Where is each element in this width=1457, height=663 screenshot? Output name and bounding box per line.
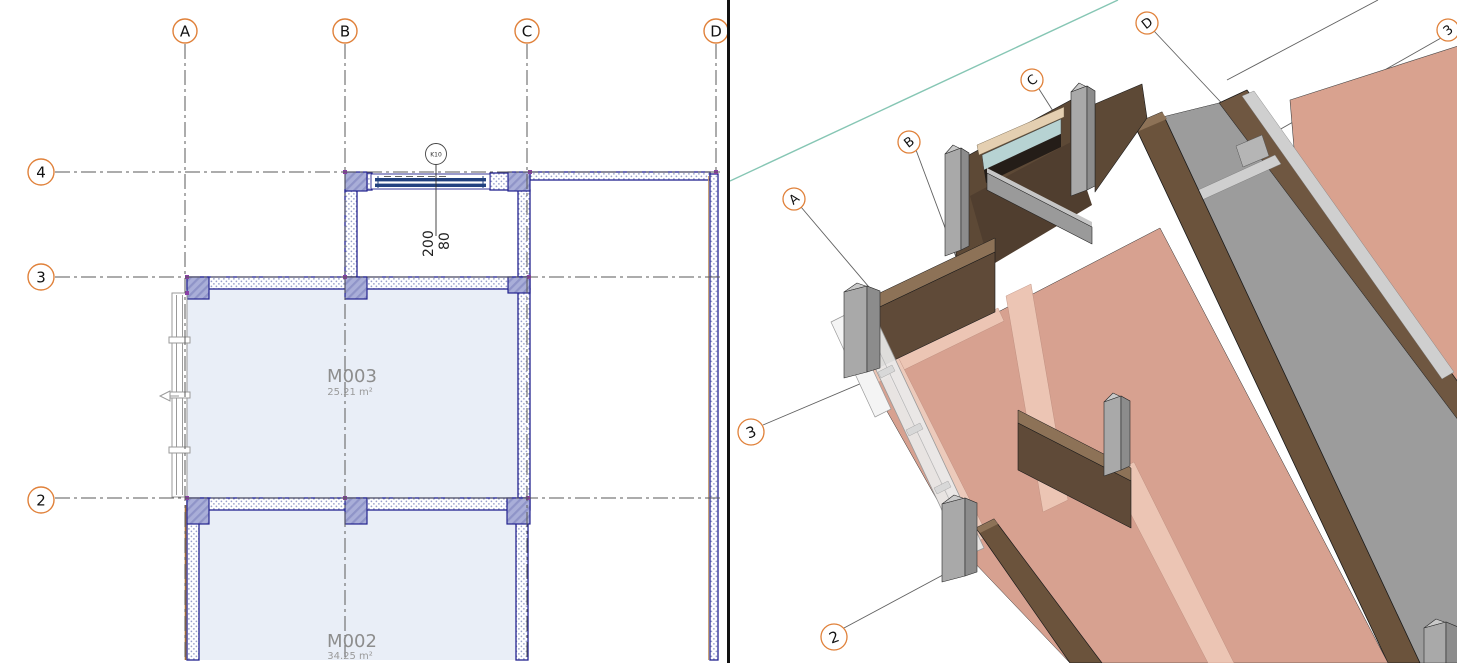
mullion-tick bbox=[169, 337, 190, 343]
wall-grid-c-mid[interactable] bbox=[518, 289, 530, 498]
grid-bubble-a-label: A bbox=[180, 23, 191, 41]
grid-bubble-2-label: 2 bbox=[36, 492, 46, 510]
wall-m002-right[interactable] bbox=[516, 510, 528, 660]
window-height-dim[interactable]: 80 bbox=[437, 232, 453, 250]
column-b2[interactable] bbox=[345, 498, 367, 524]
column-b4[interactable] bbox=[345, 172, 367, 191]
column-a3[interactable] bbox=[187, 277, 209, 299]
wall-grid-b-upper[interactable] bbox=[345, 190, 357, 277]
grid-bubble-c-label: C bbox=[522, 23, 532, 41]
3d-viewport[interactable]: A B C D 3 2 3 bbox=[730, 0, 1457, 663]
wall-grid4-cd[interactable] bbox=[530, 172, 710, 180]
plan-curtain-wall[interactable] bbox=[169, 293, 190, 497]
room-m003-label[interactable]: M003 bbox=[327, 366, 377, 387]
column-a2[interactable] bbox=[187, 498, 209, 524]
plan-window[interactable] bbox=[371, 174, 490, 189]
window-tag-label: K10 bbox=[430, 152, 442, 159]
grid-bubble-d-label: D bbox=[710, 23, 722, 41]
wall-m002-left[interactable] bbox=[187, 510, 199, 660]
plan-viewport[interactable]: K10 200 80 M003 25.21 m² M002 34.25 m² A… bbox=[0, 0, 727, 663]
grid-bubble-b-label: B bbox=[340, 23, 350, 41]
grid-bubble-4-label: 4 bbox=[36, 164, 46, 182]
column-b3[interactable] bbox=[345, 277, 367, 299]
wall-grid-d[interactable] bbox=[710, 174, 718, 660]
grid-bubble-3-label: 3 bbox=[36, 269, 46, 287]
wall-grid-c-upper[interactable] bbox=[518, 190, 530, 277]
mullion-tick bbox=[169, 392, 190, 398]
3d-building[interactable] bbox=[831, 46, 1457, 663]
room-m003-area: 25.21 m² bbox=[327, 387, 373, 398]
mullion-tick bbox=[169, 447, 190, 453]
wall-segment[interactable] bbox=[490, 173, 509, 190]
window-tag[interactable]: K10 bbox=[426, 144, 447, 237]
window-width-dim[interactable]: 200 bbox=[421, 230, 437, 257]
cad-split-view: K10 200 80 M003 25.21 m² M002 34.25 m² A… bbox=[0, 0, 1457, 663]
wall-return[interactable] bbox=[1095, 84, 1147, 192]
room-m002-area: 34.25 m² bbox=[327, 651, 373, 662]
room-m002-label[interactable]: M002 bbox=[327, 631, 377, 652]
